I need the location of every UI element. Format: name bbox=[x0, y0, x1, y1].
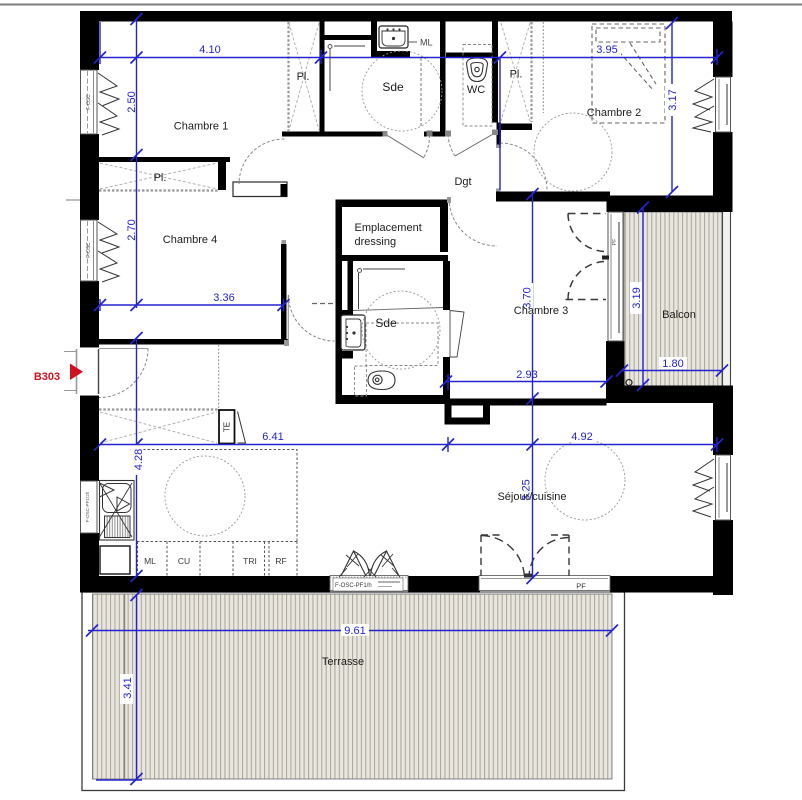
svg-text:3.41: 3.41 bbox=[122, 677, 134, 698]
svg-text:F-OSC: F-OSC bbox=[86, 94, 92, 110]
svg-text:4.10: 4.10 bbox=[199, 44, 220, 56]
svg-text:Emplacement: Emplacement bbox=[355, 222, 422, 234]
svg-text:Terrasse: Terrasse bbox=[322, 656, 364, 668]
svg-text:3.36: 3.36 bbox=[213, 292, 234, 304]
svg-text:TE: TE bbox=[223, 422, 232, 432]
svg-text:4.28: 4.28 bbox=[133, 449, 145, 470]
svg-text:Chambre 3: Chambre 3 bbox=[514, 305, 568, 317]
svg-text:Pl.: Pl. bbox=[154, 172, 167, 184]
svg-text:ML: ML bbox=[144, 556, 156, 566]
svg-text:RF: RF bbox=[275, 556, 286, 566]
svg-text:3.19: 3.19 bbox=[631, 287, 643, 308]
svg-text:F-OSC-PF1/h: F-OSC-PF1/h bbox=[335, 583, 372, 589]
svg-text:3.95: 3.95 bbox=[596, 44, 617, 56]
svg-text:F-OSC: F-OSC bbox=[86, 242, 92, 258]
svg-text:Séjour/cuisine: Séjour/cuisine bbox=[497, 491, 566, 503]
svg-text:3.17: 3.17 bbox=[667, 89, 679, 110]
svg-text:TRI: TRI bbox=[243, 556, 257, 566]
svg-text:WC: WC bbox=[467, 84, 485, 96]
svg-text:Sde: Sde bbox=[382, 80, 404, 94]
svg-text:Sde: Sde bbox=[375, 316, 397, 330]
svg-text:Chambre 1: Chambre 1 bbox=[174, 121, 228, 133]
svg-text:PF: PF bbox=[612, 238, 618, 246]
svg-text:Dgt: Dgt bbox=[454, 176, 471, 188]
svg-text:6.41: 6.41 bbox=[262, 431, 283, 443]
svg-text:4.92: 4.92 bbox=[571, 431, 592, 443]
svg-text:2.70: 2.70 bbox=[126, 219, 138, 240]
svg-text:dressing: dressing bbox=[355, 236, 397, 248]
svg-text:CU: CU bbox=[178, 556, 190, 566]
svg-text:Pl.: Pl. bbox=[510, 69, 523, 81]
svg-text:PF: PF bbox=[576, 582, 586, 591]
svg-text:2.93: 2.93 bbox=[516, 369, 537, 381]
svg-text:Balcon: Balcon bbox=[662, 309, 696, 321]
svg-text:F-OSC-PF1/2h: F-OSC-PF1/2h bbox=[85, 491, 90, 522]
svg-text:9.61: 9.61 bbox=[344, 625, 365, 637]
svg-text:ML: ML bbox=[420, 38, 433, 48]
svg-text:Chambre 4: Chambre 4 bbox=[163, 234, 217, 246]
svg-text:1.80: 1.80 bbox=[662, 358, 683, 370]
svg-text:2.50: 2.50 bbox=[126, 91, 138, 112]
svg-text:B303: B303 bbox=[34, 371, 60, 383]
svg-text:Chambre 2: Chambre 2 bbox=[587, 107, 641, 119]
svg-text:Pl.: Pl. bbox=[297, 71, 310, 83]
